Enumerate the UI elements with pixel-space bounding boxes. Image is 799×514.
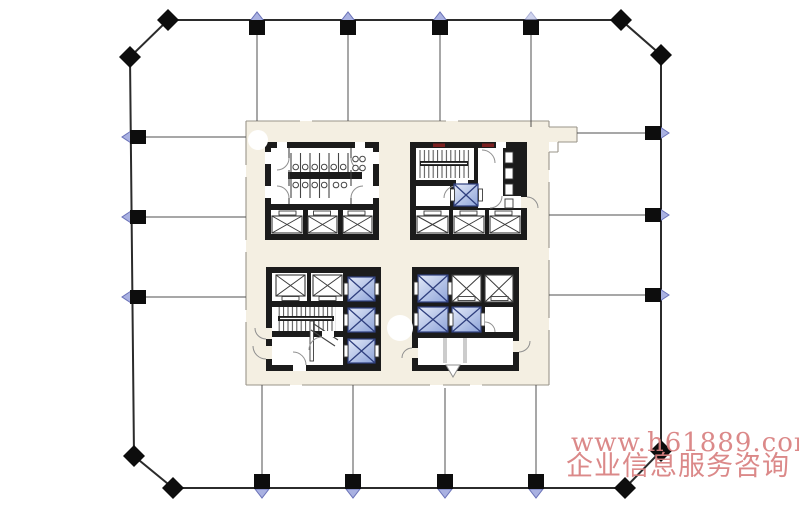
stair-north (416, 148, 474, 180)
floor-plan-page: www.h61889.com 企业信息服务咨询 (0, 0, 799, 514)
core-block-north-stair (410, 142, 538, 240)
elevator-bank-north-west (272, 210, 372, 234)
left-columns (122, 130, 146, 304)
right-columns (645, 126, 669, 302)
top-columns (249, 12, 539, 35)
bottom-columns (254, 474, 544, 498)
service-elevator (451, 184, 483, 206)
stair-south (272, 307, 343, 331)
elevator-bank-north-east (416, 210, 521, 234)
core-block-restrooms (265, 142, 379, 240)
service-elevator-column (344, 277, 379, 363)
core-block-service-bank (402, 267, 530, 377)
core-block-south-stair (253, 267, 381, 371)
watermark-caption: 企业信息服务咨询 (566, 453, 790, 480)
